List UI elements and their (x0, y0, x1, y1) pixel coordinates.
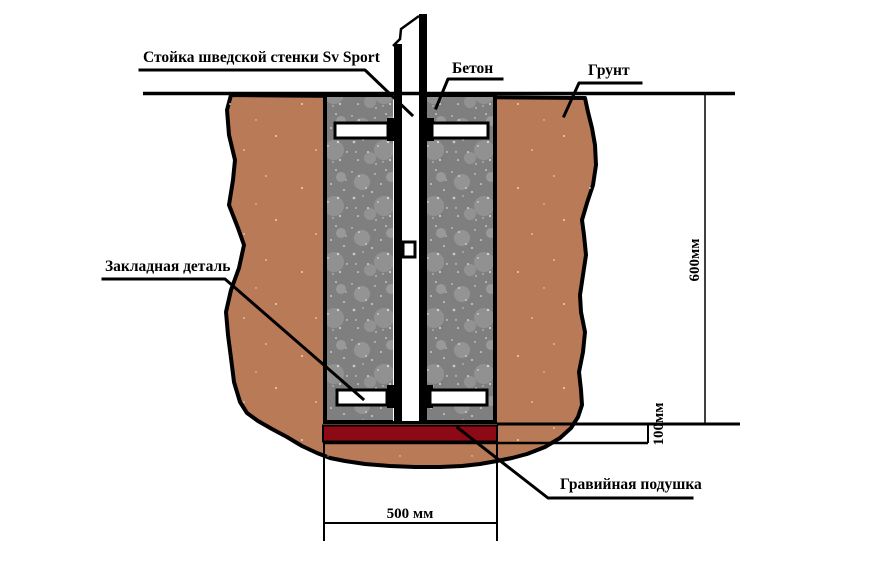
flange-top-right (432, 123, 488, 138)
post (393, 14, 427, 421)
foundation-diagram: Стойка шведской стенки Sv Sport Бетон Гр… (0, 0, 886, 584)
post-hole (403, 242, 415, 257)
ground-label: Грунт (588, 62, 630, 79)
width-dim-text: 500 мм (387, 506, 434, 522)
flange-bottom-right (430, 390, 487, 405)
depth-dim-text: 600мм (687, 239, 703, 282)
gravel-dim-text: 100мм (651, 403, 667, 446)
flange-top-left (335, 123, 388, 138)
post-right-wall (419, 14, 427, 421)
diagram-page: Стойка шведской стенки Sv Sport Бетон Гр… (0, 0, 886, 584)
embedded-label: Закладная деталь (105, 258, 230, 275)
post-label: Стойка шведской стенки Sv Sport (143, 49, 381, 66)
concrete-label: Бетон (452, 60, 493, 77)
gravel-label: Гравийная подушка (560, 476, 702, 493)
